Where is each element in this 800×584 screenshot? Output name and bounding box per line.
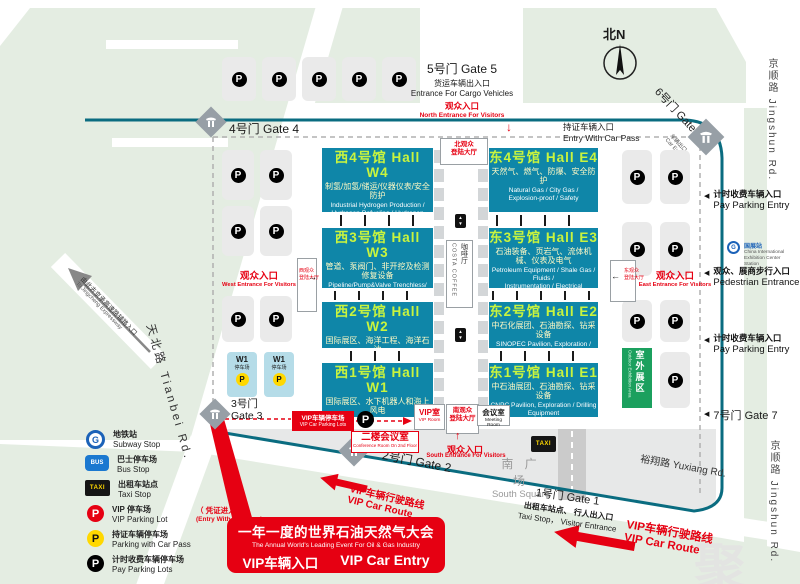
station-text: 国展站 China International Exhibition Cente… <box>744 241 784 267</box>
conference-2f-en: Conference Room On 2nd Floor <box>352 443 418 448</box>
gate5-en: Entrance For Cargo Vehicles <box>405 89 519 98</box>
legend-vip-note-cn: （ 凭证进入 ） <box>196 505 262 516</box>
w1-lot-name: W1 <box>227 355 257 364</box>
parking-lot-west-5: P <box>222 296 254 342</box>
hall-e2-en: SINOPEC Pavilion, Exploration / Drilling… <box>489 341 598 348</box>
parking-icon: P <box>232 72 247 87</box>
legend-pass-en: Parking with Car Pass <box>112 540 191 550</box>
jingshun-road-label-top: 京顺路 Jingshun Rd. <box>764 58 779 181</box>
north-entry-arrow: ↓ <box>506 120 512 134</box>
gate7-label: 7号门 Gate 7 <box>713 407 777 423</box>
legend-pass-cn: 持证车辆停车场 <box>112 530 191 540</box>
hall-e3-en: Petroleum Equipment / Shale Gas / Fluids… <box>489 267 598 288</box>
pay-parking-entry-2: ◀ 计时收费车辆入口 Pay Parking Entry <box>704 333 789 355</box>
hall-w1-title: 西1号馆 Hall W1 <box>322 366 433 396</box>
hall-e4-title: 东4号馆 Hall E4 <box>489 151 598 166</box>
pay2-cn: 计时收费车辆入口 <box>713 333 789 344</box>
vip-room: VIP室 VIP Room <box>414 404 445 430</box>
compass-icon <box>598 38 642 84</box>
hall-w2-title: 西2号馆 Hall W2 <box>322 305 433 335</box>
booth-strip <box>496 215 586 226</box>
parking-lot-west-3: P <box>222 206 254 256</box>
legend-row-pay-parking: P 计时收费车辆停车场 Pay Parking Lots <box>87 555 184 575</box>
parking-icon: P <box>668 170 683 185</box>
legend-vip-cn: VIP 停车场 <box>112 505 167 515</box>
west-entrance-cn: 观众入口 <box>222 268 296 282</box>
parking-lot-east-1: P <box>622 150 652 204</box>
pass-parking-legend-icon: P <box>87 530 104 547</box>
parking-icon: P <box>668 242 683 257</box>
parking-icon: P <box>630 170 645 185</box>
hall-e3: 东3号馆 Hall E3 石油装备、页岩气、流体机械、仪表及电气 Petrole… <box>489 228 598 288</box>
side-road-2 <box>112 138 228 147</box>
hall-e1-cn: 中石油展团、石油勘探、钻采设备 <box>489 382 598 401</box>
legend-row-subway: G 地铁站 Subway Stop <box>86 430 160 450</box>
gate7-block: ◀ 7号门 Gate 7 <box>704 407 778 423</box>
hall-e4-en: Natural Gas / City Gas / Explosion-proof… <box>489 187 598 203</box>
hall-w2: 西2号馆 Hall W2 国际展区、海洋工程、海洋石油 Internationa… <box>322 302 433 348</box>
pedestrian-text: 观众、展商步行入口 Pedestrian Entrance <box>713 266 799 288</box>
legend-subway-cn: 地铁站 <box>113 430 160 440</box>
vip-room-en: VIP Room <box>415 418 444 423</box>
legend-row-pass-parking: P 持证车辆停车场 Parking with Car Pass <box>87 530 191 550</box>
south-visitor-hall: 南观众 登陆大厅 <box>446 404 479 434</box>
costa-coffee: COSTA COFFEE 咖啡厅 <box>446 240 473 308</box>
parking-lot-east-6: P <box>660 300 690 342</box>
legend-taxi-cn: 出租车站点 <box>118 480 158 490</box>
pedestrian-en: Pedestrian Entrance <box>713 277 799 288</box>
vip-room-cn: VIP室 <box>415 407 444 418</box>
legend-row-taxi: TAXI 出租车站点 Taxi Stop <box>85 480 158 500</box>
parking-icon: P <box>269 168 284 183</box>
outdoor-area-cn: 室外展区 <box>634 350 647 408</box>
east-entrance-arrow: ← <box>611 271 620 281</box>
hall-w3: 西3号馆 Hall W3 管道、泵阀门、非开挖及检测修复设备 Pipeline/… <box>322 228 433 288</box>
hall-e2-cn: 中石化展团、石油勘探、钻采设备 <box>489 321 598 340</box>
parking-icon: P <box>269 312 284 327</box>
pedestrian-cn: 观众、展商步行入口 <box>713 266 799 277</box>
hall-w2-cn: 国际展区、海洋工程、海洋石油 <box>322 336 433 348</box>
legend-bus-en: Bus Stop <box>117 465 157 475</box>
parking-lot-north-4: P <box>342 57 376 101</box>
w1-lot-cn: 停车场 <box>264 364 294 371</box>
hall-e3-cn: 石油装备、页岩气、流体机械、仪表及电气 <box>489 247 598 266</box>
gate3-label: 3号门 Gate 3 <box>231 398 263 422</box>
parking-icon: P <box>668 314 683 329</box>
meeting-room: 会议室 Meeting Room <box>477 405 510 426</box>
parking-icon-yellow: P <box>236 373 249 386</box>
parking-icon: P <box>630 314 645 329</box>
south-entrance-arrow: ↑ <box>455 430 461 442</box>
booth-strip <box>340 215 420 226</box>
vip-parking-icon: P <box>357 411 374 428</box>
legend-vip-en: VIP Parking Lot <box>112 515 167 525</box>
costa-coffee-cn: 咖啡厅 <box>459 243 469 307</box>
legend-row-vip-parking: P VIP 停车场 VIP Parking Lot <box>87 505 167 525</box>
conference-2f-box: 二楼会议室 Conference Room On 2nd Floor <box>351 431 419 453</box>
vip-parking-legend-icon: P <box>87 505 104 522</box>
legend-subway-text: 地铁站 Subway Stop <box>113 430 160 450</box>
hall-e2-title: 东2号馆 Hall E2 <box>489 305 598 320</box>
metro-station-block: G 国展站 China International Exhibition Cen… <box>727 241 784 267</box>
parking-icon: P <box>630 242 645 257</box>
north-entrance-en: North Entrance For Visitors <box>405 112 519 119</box>
parking-lot-east-5: P <box>622 300 652 342</box>
legend-bus-cn: 巴士停车场 <box>117 455 157 465</box>
hall-e4-cn: 天然气、燃气、防爆、安全防护 <box>489 167 598 186</box>
hall-e3-title: 东3号馆 Hall E3 <box>489 231 598 246</box>
venue-map: 聚展 P P P P P 5号门 Gate 5 货运车辆出入口 Entrance… <box>0 0 800 584</box>
north-visitor-hall: 北观众 登陆大厅 <box>440 138 488 165</box>
pedestrian-entrance-block: ◀ 观众、展商步行入口 Pedestrian Entrance <box>704 266 799 288</box>
pay-parking-legend-icon: P <box>87 555 104 572</box>
hall-w4-en: Industrial Hydrogen Production / Hydroge… <box>322 202 433 212</box>
parking-icon: P <box>668 373 683 388</box>
legend-pay-text: 计时收费车辆停车场 Pay Parking Lots <box>112 555 184 575</box>
outdoor-exhibition-area: Outdoor Exhibition Area 室外展区 <box>622 348 652 408</box>
east-entrance-cn: 观众入口 <box>638 268 712 282</box>
parking-lot-west-6: P <box>260 296 292 342</box>
pay-parking-entry-1: ◀ 计时收费车辆入口 Pay Parking Entry <box>704 189 789 211</box>
legend-taxi-en: Taxi Stop <box>118 490 158 500</box>
parking-icon: P <box>352 72 367 87</box>
east-entrance-corridor <box>610 260 636 302</box>
hall-w4-title: 西4号馆 Hall W4 <box>322 151 433 181</box>
taxi-stop-icon: TAXI <box>531 436 556 452</box>
north-entrance-cn: 观众入口 <box>405 100 519 112</box>
hall-w3-en: Pipeline/Pump&Valve Trenchless/ Inspecti… <box>322 282 433 288</box>
metro-station-icon: G <box>727 241 740 254</box>
station-cn: 国展站 <box>744 241 784 250</box>
booth-strip <box>334 291 426 300</box>
entry-pass-cn: 持证车辆入口 <box>563 121 640 133</box>
banner-line3: VIP车辆入口 VIP Car Entry <box>227 552 445 572</box>
banner-vip-cn: VIP车辆入口 <box>243 552 319 572</box>
parking-icon-yellow: P <box>273 373 286 386</box>
east-entrance-block: 观众入口 East Entrance For Visitors <box>638 268 712 288</box>
pay1-en: Pay Parking Entry <box>713 200 789 211</box>
hall-w3-cn: 管道、泵阀门、非开挖及检测修复设备 <box>322 262 433 281</box>
legend-taxi-text: 出租车站点 Taxi Stop <box>118 480 158 500</box>
hall-e1-title: 东1号馆 Hall E1 <box>489 366 598 381</box>
vip-car-parking-box: VIP车辆停车场 VIP Car Parking Lots <box>292 411 354 431</box>
legend-vip-text: VIP 停车场 VIP Parking Lot <box>112 505 167 525</box>
station-en: China International Exhibition Center St… <box>744 250 784 267</box>
west-entrance-en: West Entrance For Visitors <box>222 282 296 288</box>
parking-lot-east-2: P <box>660 150 690 204</box>
conference-2f-cn: 二楼会议室 <box>352 433 418 443</box>
parking-lot-north-3: P <box>302 57 336 101</box>
parking-icon: P <box>231 224 246 239</box>
subway-icon: G <box>86 430 105 449</box>
costa-coffee-en: COSTA COFFEE <box>451 243 457 307</box>
west-entrance-arrow: → <box>308 272 317 282</box>
gate4-label: 4号门 Gate 4 <box>229 120 299 137</box>
vip-lot-en: VIP Car Parking Lots <box>292 422 354 428</box>
west-entrance-block: 观众入口 West Entrance For Visitors <box>222 268 296 288</box>
elevator-icon: ▲ ▼ <box>455 214 466 228</box>
parking-icon: P <box>272 72 287 87</box>
booth-strip <box>350 351 420 361</box>
booth-strip <box>492 291 592 300</box>
w1-lot-cn: 停车场 <box>227 364 257 371</box>
gate5-block: 5号门 Gate 5 货运车辆出入口 Entrance For Cargo Ve… <box>405 60 519 119</box>
parking-icon: P <box>269 224 284 239</box>
left-triangle-icon: ◀ <box>704 336 709 344</box>
meeting-room-cn: 会议室 <box>478 407 509 418</box>
booth-strip <box>500 351 585 361</box>
east-entrance-en: East Entrance For Visitors <box>638 282 712 288</box>
parking-icon: P <box>231 168 246 183</box>
parking-lot-west-4: P <box>260 206 292 256</box>
hall-e2: 东2号馆 Hall E2 中石化展团、石油勘探、钻采设备 SINOPEC Pav… <box>489 302 598 348</box>
vip-dashed-route-arrowhead <box>403 417 412 425</box>
outdoor-area-en: Outdoor Exhibition Area <box>628 350 633 408</box>
w1-lot-name: W1 <box>264 355 294 364</box>
w1-parking-lot-1: W1 停车场 P <box>227 352 257 397</box>
parking-lot-west-1: P <box>222 150 254 200</box>
legend-pay-cn: 计时收费车辆停车场 <box>112 555 184 565</box>
pay2-en: Pay Parking Entry <box>713 344 789 355</box>
jingshun-road-label-bottom: 京顺路 Jingshun Rd. <box>766 440 781 563</box>
legend-bus-text: 巴士停车场 Bus Stop <box>117 455 157 475</box>
parking-lot-north-2: P <box>262 57 296 101</box>
parking-lot-north-1: P <box>222 57 256 101</box>
banner-line2: The Annual World's Leading Event For Oil… <box>227 542 445 549</box>
entry-pass-en: Entry With Car Pass <box>563 133 640 143</box>
hall-w4: 西4号馆 Hall W4 制氢/加氢/储运/仪器仪表/安全防护 Industri… <box>322 148 433 212</box>
parking-icon: P <box>231 312 246 327</box>
corridor-booths-left <box>434 150 444 408</box>
hall-w4-cn: 制氢/加氢/储运/仪器仪表/安全防护 <box>322 182 433 201</box>
legend-subway-en: Subway Stop <box>113 440 160 450</box>
legend-vip-note-en: (Entry With Car Pass) <box>196 516 262 523</box>
bus-icon: BUS <box>85 455 109 471</box>
legend-pay-en: Pay Parking Lots <box>112 565 184 575</box>
left-triangle-icon: ◀ <box>704 410 709 418</box>
legend-row-bus: BUS 巴士停车场 Bus Stop <box>85 455 157 475</box>
taxi-icon: TAXI <box>85 480 110 496</box>
banner-vip-en: VIP Car Entry <box>340 552 429 572</box>
vip-lot-cn: VIP车辆停车场 <box>292 412 354 422</box>
pay1-text: 计时收费车辆入口 Pay Parking Entry <box>713 189 789 211</box>
banner-line1: 一年一度的世界石油天然气大会 <box>227 521 445 541</box>
legend-pass-text: 持证车辆停车场 Parking with Car Pass <box>112 530 191 550</box>
hall-e4: 东4号馆 Hall E4 天然气、燃气、防爆、安全防护 Natural Gas … <box>489 148 598 212</box>
hall-w3-title: 西3号馆 Hall W3 <box>322 231 433 261</box>
parking-icon: P <box>312 72 327 87</box>
legend-vip-note: （ 凭证进入 ） (Entry With Car Pass) <box>196 505 262 523</box>
w1-parking-lot-2: W1 停车场 P <box>264 352 294 397</box>
elevator-icon: ▲ ▼ <box>455 328 466 342</box>
pay1-cn: 计时收费车辆入口 <box>713 189 789 200</box>
parking-lot-west-2: P <box>260 150 292 200</box>
side-road-1 <box>106 40 238 49</box>
west-entrance-corridor <box>297 258 317 312</box>
gate5-cn: 货运车辆出入口 <box>405 78 519 89</box>
gate5-label: 5号门 Gate 5 <box>405 60 519 77</box>
meeting-room-en: Meeting Room <box>478 418 509 428</box>
corridor-booths-right <box>478 150 488 408</box>
vip-entry-banner: 一年一度的世界石油天然气大会 The Annual World's Leadin… <box>227 517 445 573</box>
parking-lot-east-7: P <box>660 352 690 408</box>
left-triangle-icon: ◀ <box>704 192 709 200</box>
entry-with-pass-block: 持证车辆入口 Entry With Car Pass <box>563 121 640 143</box>
pay2-text: 计时收费车辆入口 Pay Parking Entry <box>713 333 789 355</box>
